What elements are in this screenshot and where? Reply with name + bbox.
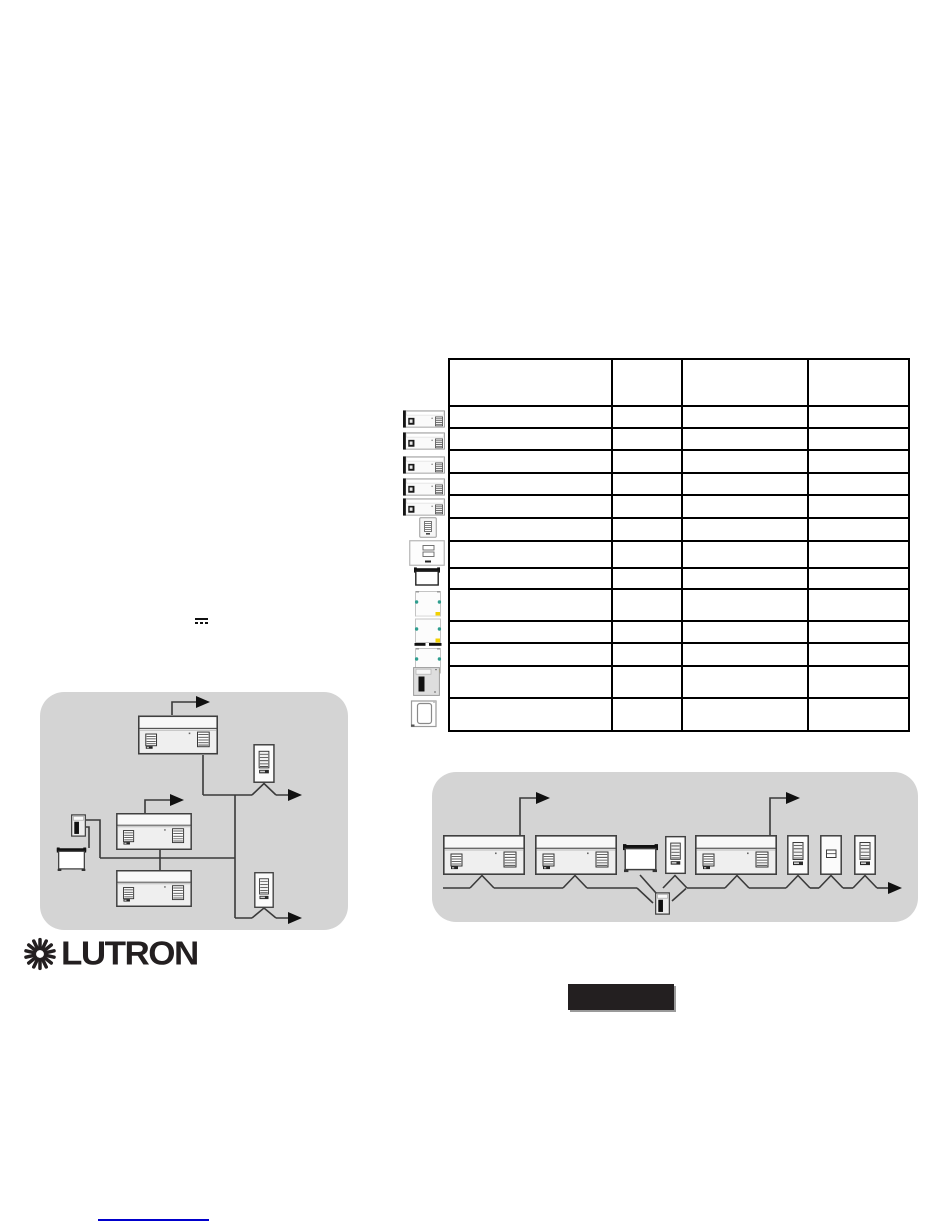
device-outline-icon xyxy=(410,700,438,728)
product-spec-table xyxy=(448,358,910,732)
table-cell xyxy=(449,473,612,495)
table-cell xyxy=(808,698,909,731)
table-row xyxy=(449,495,909,518)
table-cell xyxy=(682,568,808,589)
table-header-cell xyxy=(808,359,909,406)
table-cell xyxy=(682,541,808,568)
power-module-device xyxy=(139,716,217,753)
table-row xyxy=(449,450,909,473)
table-cell xyxy=(449,518,612,541)
table-cell xyxy=(682,666,808,698)
lutron-logo: LUTRON xyxy=(22,934,198,974)
table-cell xyxy=(808,495,909,518)
table-cell xyxy=(808,518,909,541)
table-cell xyxy=(808,541,909,568)
table-row xyxy=(449,643,909,666)
table-cell xyxy=(808,473,909,495)
wallstation-icon xyxy=(409,540,445,566)
table-cell xyxy=(449,568,612,589)
table-row xyxy=(449,541,909,568)
table-cell xyxy=(449,698,612,731)
power-module-device xyxy=(444,836,524,874)
projection-screen-icon xyxy=(414,567,440,587)
keypad-device xyxy=(788,836,808,874)
sunburst-icon xyxy=(22,936,58,972)
table-cell xyxy=(682,589,808,621)
table-cell xyxy=(682,518,808,541)
table-cell xyxy=(449,406,612,428)
projection-screen-device xyxy=(623,844,658,872)
control-interface-device xyxy=(72,815,86,836)
power-module-device xyxy=(117,871,191,907)
wiring-diagram-right xyxy=(432,772,918,922)
table-cell xyxy=(808,589,909,621)
keypad-device xyxy=(855,836,875,874)
table-cell xyxy=(612,518,682,541)
table-cell xyxy=(612,568,682,589)
table-cell xyxy=(612,450,682,473)
table-header-cell xyxy=(449,359,612,406)
projection-screen-device xyxy=(57,848,86,871)
table-row xyxy=(449,518,909,541)
table-cell xyxy=(682,698,808,731)
keypad-device xyxy=(254,745,274,782)
table-cell xyxy=(808,450,909,473)
table-cell xyxy=(682,450,808,473)
table-header-row xyxy=(449,359,909,406)
table-cell xyxy=(449,621,612,643)
power-interface-icon xyxy=(413,667,440,696)
table-cell xyxy=(682,621,808,643)
table-header-cell xyxy=(612,359,682,406)
table-cell xyxy=(612,428,682,450)
footer-hyperlink[interactable] xyxy=(98,1219,209,1221)
control-interface-device xyxy=(656,893,670,914)
table-cell xyxy=(449,450,612,473)
table-cell xyxy=(612,589,682,621)
table-cell xyxy=(612,698,682,731)
power-module-icon xyxy=(403,432,445,450)
wiring-diagram-left xyxy=(40,692,348,930)
table-cell xyxy=(449,666,612,698)
shade-module-icon xyxy=(414,590,442,618)
keypad-icon xyxy=(419,517,437,538)
table-cell xyxy=(808,621,909,643)
table-cell xyxy=(612,473,682,495)
table-row xyxy=(449,568,909,589)
table-row xyxy=(449,473,909,495)
table-cell xyxy=(612,666,682,698)
power-module-icon xyxy=(403,456,445,474)
table-row xyxy=(449,621,909,643)
table-row xyxy=(449,589,909,621)
power-module-device xyxy=(536,836,616,874)
table-cell xyxy=(449,428,612,450)
table-row xyxy=(449,406,909,428)
keypad-device xyxy=(255,873,273,908)
table-cell xyxy=(612,621,682,643)
table-cell xyxy=(808,568,909,589)
table-cell xyxy=(682,428,808,450)
table-cell xyxy=(612,541,682,568)
table-cell xyxy=(808,643,909,666)
table-cell xyxy=(612,495,682,518)
table-row xyxy=(449,666,909,698)
power-module-icon xyxy=(403,478,445,496)
document-page: LUTRON xyxy=(0,0,950,1229)
shade-module-dark-icon xyxy=(414,618,442,646)
power-module-device xyxy=(117,814,191,850)
table-cell xyxy=(449,643,612,666)
table-cell xyxy=(449,541,612,568)
table-cell xyxy=(808,428,909,450)
black-label-box xyxy=(568,984,674,1010)
table-header-cell xyxy=(682,359,808,406)
keypad-device xyxy=(821,836,841,874)
power-module-icon xyxy=(403,498,445,516)
table-cell xyxy=(808,666,909,698)
dc-power-icon xyxy=(195,618,210,624)
power-module-device xyxy=(696,836,776,874)
table-cell xyxy=(808,406,909,428)
table-row xyxy=(449,698,909,731)
table-cell xyxy=(612,406,682,428)
table-cell xyxy=(682,643,808,666)
logo-wordmark: LUTRON xyxy=(61,935,198,973)
table-row xyxy=(449,428,909,450)
table-cell xyxy=(682,406,808,428)
table-cell xyxy=(449,495,612,518)
table-cell xyxy=(449,589,612,621)
power-module-icon xyxy=(403,410,445,428)
keypad-device xyxy=(666,837,685,874)
table-cell xyxy=(612,643,682,666)
table-cell xyxy=(682,473,808,495)
table-cell xyxy=(682,495,808,518)
